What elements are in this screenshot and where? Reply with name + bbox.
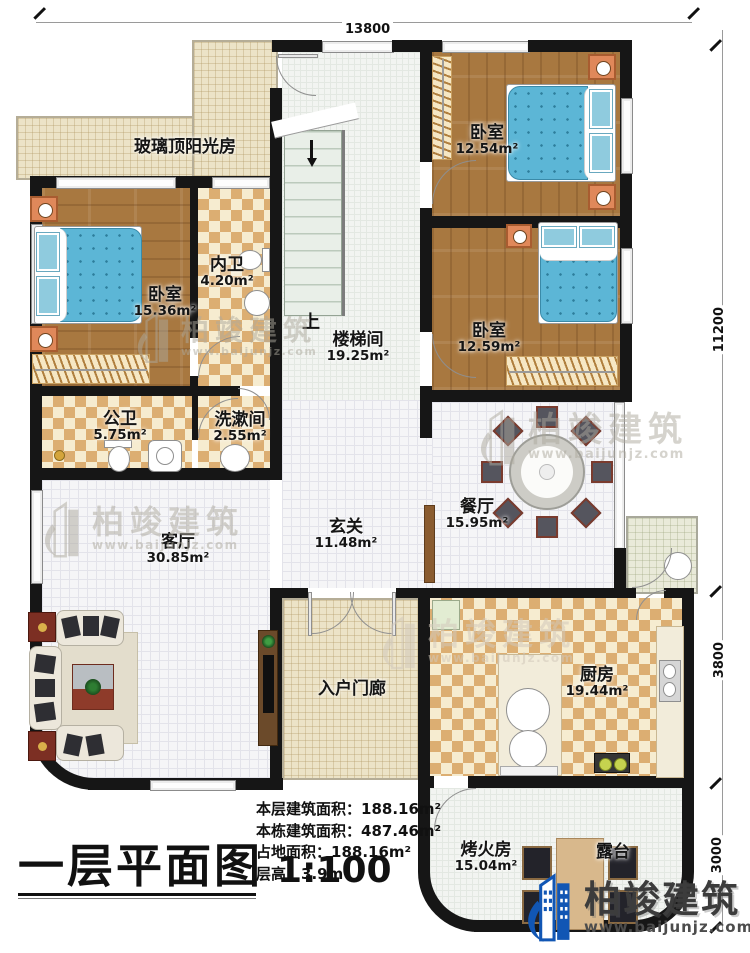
room-area: 15.04m²	[440, 859, 532, 873]
nightstand	[506, 224, 532, 248]
wall	[30, 386, 240, 396]
bed-fold	[540, 248, 617, 261]
sofa-cushion	[83, 616, 99, 636]
end-table	[28, 612, 56, 642]
dining-chair	[481, 461, 503, 483]
room-label-bedroom-left: 卧室15.36m²	[120, 286, 210, 319]
pillow	[590, 90, 612, 128]
stats-block: 本层建筑面积：188.16m² 本栋建筑面积：487.46m² 占地面积：188…	[256, 799, 441, 885]
end-table-lamp	[38, 623, 47, 632]
brand-logo-url: www.baijunjz.com	[584, 918, 750, 936]
room-label-inner-bath: 内卫4.20m²	[192, 256, 262, 289]
room-label-stairwell: 楼梯间19.25m²	[316, 331, 400, 364]
sofa-cushion	[63, 734, 83, 757]
coffee-table	[72, 664, 114, 710]
burner-icon	[614, 758, 627, 771]
room-name: 玻璃顶阳光房	[110, 138, 260, 156]
dimension-label-right-upper: 11200	[712, 305, 727, 354]
door-leaf	[392, 592, 396, 636]
stair-direction-arrow	[310, 140, 313, 160]
room-label-terrace: 露台	[588, 843, 638, 861]
kitchen-basin	[506, 688, 550, 732]
window	[621, 248, 633, 324]
end-table	[28, 731, 56, 761]
dimension-label-top: 13800	[342, 22, 393, 37]
wall	[528, 40, 632, 52]
wall	[282, 588, 308, 598]
stat-row: 本层建筑面积：188.16m²	[256, 799, 441, 821]
stat-value: 188.16m²	[361, 800, 441, 818]
wall	[418, 776, 434, 788]
nightstand	[588, 184, 616, 210]
dimension-label-right-mid: 3800	[712, 640, 727, 680]
dimension-tick	[687, 7, 699, 19]
room-area: 15.95m²	[432, 516, 522, 530]
kitchen-counter	[656, 626, 684, 778]
plant-icon	[262, 635, 275, 648]
lamp-icon	[38, 333, 53, 348]
window	[56, 177, 176, 189]
wall	[418, 598, 430, 776]
pillow	[37, 233, 59, 271]
toilet	[108, 446, 130, 472]
room-floor-foyer	[282, 400, 432, 588]
kitchen-basin	[509, 730, 547, 768]
room-name: 卧室	[444, 322, 534, 340]
wall	[392, 40, 442, 52]
sofa	[56, 725, 124, 761]
room-name: 入户门廊	[294, 680, 410, 698]
window	[31, 490, 43, 584]
tv-cabinet	[258, 630, 278, 746]
room-name: 卧室	[442, 124, 532, 142]
stat-label: 占地面积：	[256, 843, 331, 861]
room-name: 公卫	[78, 410, 162, 428]
room-label-foyer: 玄关11.48m²	[303, 518, 389, 551]
room-area: 19.25m²	[316, 349, 400, 363]
title-underline	[18, 893, 256, 896]
door-leaf	[278, 54, 318, 58]
washing-machine	[148, 440, 182, 472]
room-name: 卧室	[120, 286, 210, 304]
kitchen-sink	[659, 660, 681, 702]
burner-icon	[599, 758, 612, 771]
wall	[424, 588, 636, 598]
dining-chair	[536, 406, 558, 428]
room-name: 客厅	[133, 533, 223, 551]
nightstand	[588, 54, 616, 80]
room-name: 楼梯间	[316, 331, 400, 349]
bed-blanket	[540, 254, 617, 322]
stat-label: 层高：	[256, 865, 301, 883]
washing-machine-drum	[156, 447, 174, 465]
room-name: 洗漱间	[198, 411, 282, 429]
dining-chair	[536, 516, 558, 538]
stat-row: 本栋建筑面积：487.46m²	[256, 821, 441, 843]
stat-row: 占地面积：188.16m²	[256, 842, 441, 864]
wall	[664, 588, 694, 598]
room-label-living: 客厅30.85m²	[133, 533, 223, 566]
window	[614, 402, 625, 550]
room-label-entry-porch: 入户门廊	[294, 680, 410, 698]
dimension-tick	[709, 39, 721, 51]
end-table-lamp	[38, 742, 47, 751]
room-name: 露台	[588, 843, 638, 861]
stair-stringer	[342, 130, 345, 316]
dimension-label-right-lower: 3000	[710, 835, 725, 875]
room-label-fire-room: 烤火房15.04m²	[440, 841, 532, 874]
room-label-wash-room: 洗漱间2.55m²	[198, 411, 282, 444]
stair-arrow-head	[307, 158, 317, 167]
stat-value: 3.9m	[301, 865, 343, 883]
wardrobe	[506, 356, 618, 386]
nightstand	[30, 196, 58, 222]
tv	[263, 655, 274, 713]
wall	[272, 40, 322, 52]
dimension-tick	[709, 777, 721, 789]
stat-label: 本栋建筑面积：	[256, 822, 361, 840]
sofa-cushion	[35, 679, 55, 697]
wall	[420, 52, 432, 162]
room-name: 厨房	[552, 666, 642, 684]
brand-logo-text: 柏竣建筑 www.baijunjz.com	[584, 881, 750, 936]
room-label-bedroom-mid-right: 卧室12.59m²	[444, 322, 534, 355]
room-label-dining: 餐厅15.95m²	[432, 498, 522, 531]
stat-row: 层高：3.9m	[256, 864, 441, 886]
room-label-bedroom-top-right: 卧室12.54m²	[442, 124, 532, 157]
sink-bowl	[663, 682, 676, 697]
brand-logo-name: 柏竣建筑	[584, 881, 750, 918]
dimension-tick	[33, 7, 45, 19]
lamp-icon	[513, 230, 527, 244]
wall	[432, 390, 620, 402]
plant-icon	[85, 679, 101, 695]
wall	[682, 788, 694, 872]
room-name: 烤火房	[440, 841, 532, 859]
wardrobe-rail	[35, 369, 147, 371]
lamp-icon	[596, 61, 611, 76]
window	[150, 780, 236, 791]
room-area: 19.44m²	[552, 684, 642, 698]
wall	[420, 208, 432, 332]
window	[621, 98, 633, 174]
room-area: 12.54m²	[442, 142, 532, 156]
sofa-cushion	[61, 616, 81, 639]
room-area: 4.20m²	[192, 274, 262, 288]
room-label-kitchen: 厨房19.44m²	[552, 666, 642, 699]
room-label-sunroom: 玻璃顶阳光房	[110, 138, 260, 156]
floor-drain	[54, 450, 65, 461]
stove	[594, 753, 630, 773]
dimension-line-right	[722, 30, 723, 930]
sofa-cushion	[34, 654, 56, 675]
stat-value: 188.16m²	[331, 843, 411, 861]
room-area: 2.55m²	[198, 429, 282, 443]
brand-logo-icon	[524, 872, 580, 944]
sofa-cushion	[34, 702, 56, 723]
room-area: 30.85m²	[133, 551, 223, 565]
wardrobe	[32, 354, 150, 384]
room-area: 12.59m²	[444, 340, 534, 354]
nightstand	[30, 326, 58, 352]
room-floor-sunroom	[192, 40, 278, 180]
sink	[220, 444, 250, 472]
room-area: 15.36m²	[120, 304, 210, 318]
title-underline-thin	[18, 898, 256, 899]
sink-bowl	[663, 664, 676, 679]
toilet-tank	[262, 248, 270, 272]
window	[442, 41, 530, 53]
room-area: 5.75m²	[78, 428, 162, 442]
sink	[244, 290, 270, 316]
window	[322, 41, 394, 53]
pillow	[542, 227, 576, 247]
stat-value: 487.46m²	[361, 822, 441, 840]
room-label-public-bath: 公卫5.75m²	[78, 410, 162, 443]
room-name: 餐厅	[432, 498, 522, 516]
fridge	[432, 600, 460, 630]
lamp-icon	[38, 203, 53, 218]
brand-logo: 柏竣建筑 www.baijunjz.com	[524, 872, 750, 944]
wall	[614, 548, 626, 590]
door-arc	[636, 590, 666, 620]
floor-plan-canvas: 13800 11200 3800 3000	[0, 0, 750, 953]
dimension-tick	[709, 585, 721, 597]
window	[212, 177, 270, 189]
wall	[420, 386, 432, 438]
kitchen-shelf	[500, 766, 558, 776]
dining-chair	[591, 461, 613, 483]
page-title: 一层平面图	[18, 843, 263, 889]
pillow	[590, 134, 612, 172]
sofa-cushion	[100, 616, 120, 639]
lamp-icon	[596, 191, 611, 206]
sofa	[56, 610, 124, 646]
stat-label: 本层建筑面积：	[256, 800, 361, 818]
pillow	[580, 227, 614, 247]
wardrobe-rail	[509, 371, 615, 373]
dining-table-center	[539, 464, 555, 480]
sofa	[29, 646, 62, 730]
sofa-cushion	[85, 734, 104, 756]
room-name: 内卫	[192, 256, 262, 274]
room-name: 玄关	[303, 518, 389, 536]
pillow	[37, 277, 59, 315]
room-area: 11.48m²	[303, 536, 389, 550]
